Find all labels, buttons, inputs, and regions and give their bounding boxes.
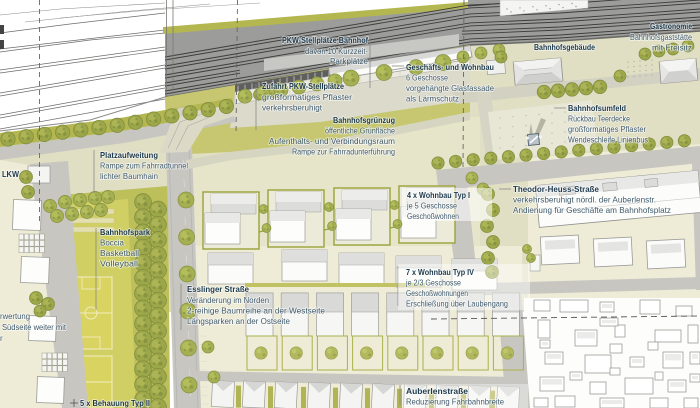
svg-text:Esslinger Straße: Esslinger Straße	[187, 284, 249, 294]
svg-text:Bahnhofsgrünzug: Bahnhofsgrünzug	[333, 115, 395, 125]
svg-text:Rückbau Teerdecke: Rückbau Teerdecke	[568, 114, 630, 124]
svg-text:je 5 Geschosse: je 5 Geschosse	[406, 201, 457, 211]
svg-text:Bahnhofsgaststätte: Bahnhofsgaststätte	[630, 32, 692, 42]
svg-text:verkehrsberuhigt: verkehrsberuhigt	[262, 103, 323, 113]
svg-text:großformatiges Pflaster: großformatiges Pflaster	[568, 124, 646, 134]
svg-text:Wendeschleife Linienbus: Wendeschleife Linienbus	[568, 135, 648, 145]
svg-text:Veränderung im Norden: Veränderung im Norden	[187, 295, 269, 305]
svg-text:lichter Baumhain: lichter Baumhain	[100, 171, 158, 181]
svg-text:Gastronomie: Gastronomie	[650, 21, 692, 31]
svg-text:Erschließung über Laubengang: Erschließung über Laubengang	[406, 299, 508, 309]
svg-text:verkehrsberuhigt nördl. der Au: verkehrsberuhigt nördl. der Auberlenstr.	[513, 195, 656, 205]
svg-text:als Lärmschutz: als Lärmschutz	[406, 94, 459, 104]
svg-text:öffentliche Grünfläche: öffentliche Grünfläche	[325, 126, 395, 136]
svg-text:Andienung für Geschäfte am Bah: Andienung für Geschäfte am Bahnhofsplatz	[513, 205, 671, 215]
svg-text:r: r	[0, 333, 3, 343]
svg-text:Basketball: Basketball	[100, 248, 139, 258]
svg-text:7 x Wohnbau Typ IV: 7 x Wohnbau Typ IV	[406, 267, 474, 277]
svg-text:Geschäfts- und Wohnbau: Geschäfts- und Wohnbau	[406, 62, 494, 72]
svg-text:4 x Wohnbau Typ I: 4 x Wohnbau Typ I	[407, 190, 470, 200]
svg-text:Geschoßwohnungen: Geschoßwohnungen	[406, 288, 468, 298]
svg-text:Rampe zur Fahrradunterführung: Rampe zur Fahrradunterführung	[292, 147, 395, 157]
svg-text:Volleyball: Volleyball	[100, 259, 138, 269]
svg-text:Rampe zum Fahrradtunnel: Rampe zum Fahrradtunnel	[100, 161, 188, 171]
svg-text:vorgehängte Glasfassade: vorgehängte Glasfassade	[406, 83, 494, 93]
svg-text:mit Freisitz: mit Freisitz	[652, 43, 692, 53]
svg-text:Südseite weiter mit: Südseite weiter mit	[2, 322, 67, 332]
svg-text:Boccia: Boccia	[100, 238, 124, 248]
svg-text:Theodor-Heuss-Straße: Theodor-Heuss-Straße	[513, 184, 599, 194]
svg-text:Bahnhofspark: Bahnhofspark	[100, 227, 150, 237]
svg-text:Reduzierung Fahrbahnbreite: Reduzierung Fahrbahnbreite	[406, 397, 504, 407]
svg-text:Parkplätze: Parkplätze	[330, 56, 368, 66]
svg-text:Platzaufweitung: Platzaufweitung	[100, 150, 158, 160]
svg-text:Geschoßwohnen: Geschoßwohnen	[407, 211, 459, 221]
svg-text:großformatiges Pflaster: großformatiges Pflaster	[262, 92, 352, 102]
svg-text:Bahnhofsgebäude: Bahnhofsgebäude	[534, 42, 595, 52]
svg-text:Zufahrt PKW-Stellplätze: Zufahrt PKW-Stellplätze	[262, 81, 344, 91]
svg-text:Längsparken an der Ostseite: Längsparken an der Ostseite	[187, 316, 290, 326]
svg-text:Aufenthalts- und Verbindungsra: Aufenthalts- und Verbindungsraum	[269, 136, 395, 146]
svg-text:2-reihige Baumreihe an der Wes: 2-reihige Baumreihe an der Westseite	[187, 306, 325, 316]
svg-text:je 2/3 Geschosse: je 2/3 Geschosse	[405, 278, 461, 288]
svg-text:Bahnhofsumfeld: Bahnhofsumfeld	[568, 103, 626, 113]
svg-text:LKW: LKW	[2, 169, 19, 179]
svg-text:davon 10 Kurzzeit-: davon 10 Kurzzeit-	[305, 46, 368, 56]
svg-text:5 x Behauung Typ II: 5 x Behauung Typ II	[80, 398, 150, 408]
svg-text:Auberlenstraße: Auberlenstraße	[406, 386, 468, 396]
svg-text:PKW-Stellplätze Bahnhof: PKW-Stellplätze Bahnhof	[282, 35, 368, 45]
svg-text:rwertung: rwertung	[0, 311, 30, 321]
svg-text:6 Geschosse: 6 Geschosse	[406, 73, 448, 83]
